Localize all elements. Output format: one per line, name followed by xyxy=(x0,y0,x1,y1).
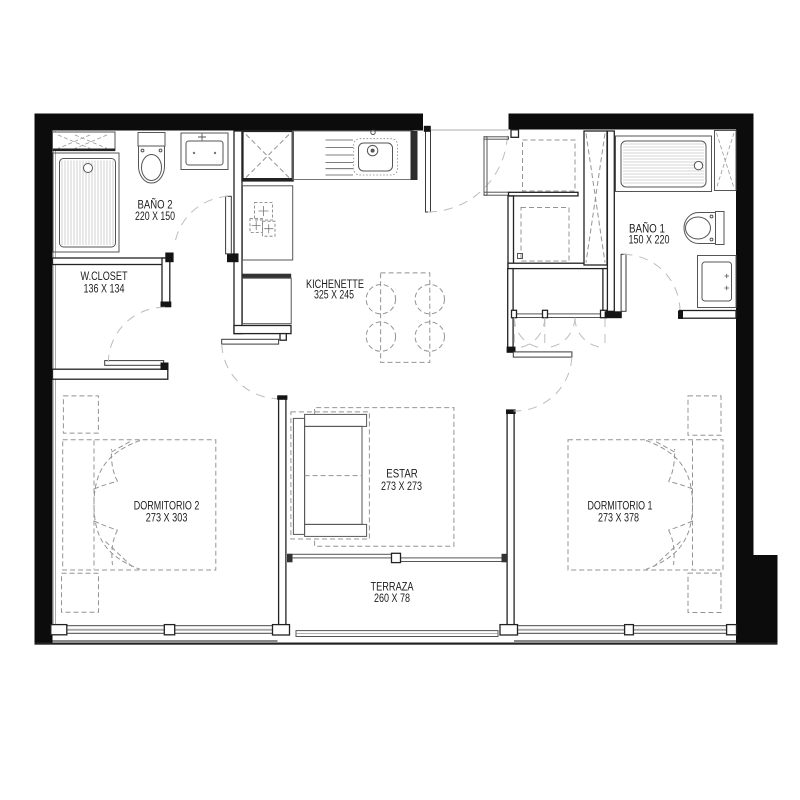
svg-text:136 X 134: 136 X 134 xyxy=(84,282,125,296)
svg-text:273 X 303: 273 X 303 xyxy=(146,511,188,525)
svg-text:260 X 78: 260 X 78 xyxy=(374,591,410,605)
svg-text:325 X 245: 325 X 245 xyxy=(314,288,354,302)
svg-text:150 X 220: 150 X 220 xyxy=(629,233,670,247)
svg-text:220 X 150: 220 X 150 xyxy=(135,209,175,223)
svg-text:273 X 273: 273 X 273 xyxy=(381,479,422,493)
svg-text:273 X 378: 273 X 378 xyxy=(598,511,639,525)
